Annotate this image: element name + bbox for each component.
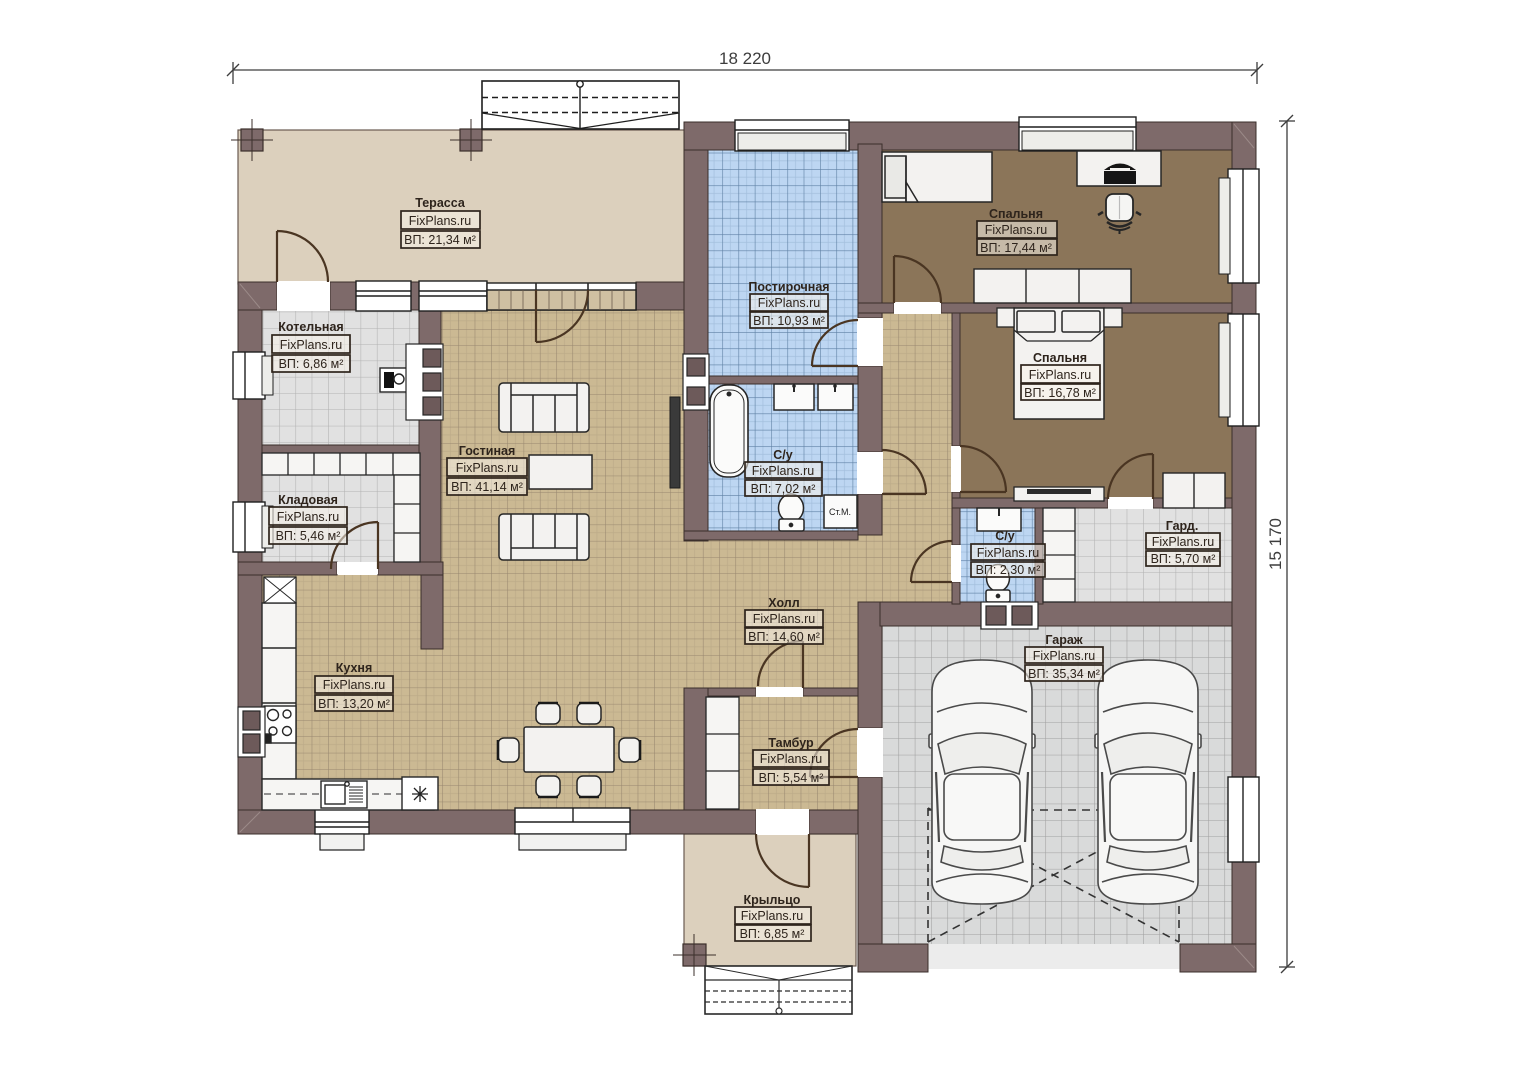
svg-text:С/у: С/у xyxy=(995,529,1015,543)
svg-text:FixPlans.ru: FixPlans.ru xyxy=(280,338,343,352)
svg-text:FixPlans.ru: FixPlans.ru xyxy=(985,223,1048,237)
svg-text:Гард.: Гард. xyxy=(1166,519,1199,533)
svg-text:Холл: Холл xyxy=(768,596,799,610)
svg-text:Котельная: Котельная xyxy=(278,320,343,334)
svg-text:FixPlans.ru: FixPlans.ru xyxy=(977,546,1040,560)
svg-text:ВП: 41,14 м²: ВП: 41,14 м² xyxy=(451,480,523,494)
svg-text:FixPlans.ru: FixPlans.ru xyxy=(753,612,816,626)
svg-text:ВП: 35,34 м²: ВП: 35,34 м² xyxy=(1028,667,1100,681)
svg-text:FixPlans.ru: FixPlans.ru xyxy=(277,510,340,524)
svg-text:FixPlans.ru: FixPlans.ru xyxy=(1029,368,1092,382)
svg-text:ВП: 21,34 м²: ВП: 21,34 м² xyxy=(404,233,476,247)
svg-text:ВП: 14,60 м²: ВП: 14,60 м² xyxy=(748,630,820,644)
svg-text:Кладовая: Кладовая xyxy=(278,493,338,507)
svg-text:ВП: 6,85 м²: ВП: 6,85 м² xyxy=(740,927,805,941)
svg-text:FixPlans.ru: FixPlans.ru xyxy=(323,678,386,692)
svg-text:С/у: С/у xyxy=(773,448,793,462)
svg-text:ВП: 5,54 м²: ВП: 5,54 м² xyxy=(759,771,824,785)
svg-text:Спальня: Спальня xyxy=(989,207,1043,221)
svg-text:Гараж: Гараж xyxy=(1045,633,1082,647)
svg-text:ВП: 5,70 м²: ВП: 5,70 м² xyxy=(1151,552,1216,566)
svg-text:FixPlans.ru: FixPlans.ru xyxy=(1152,535,1215,549)
svg-text:FixPlans.ru: FixPlans.ru xyxy=(758,296,821,310)
svg-text:Терасса: Терасса xyxy=(415,196,466,210)
svg-text:FixPlans.ru: FixPlans.ru xyxy=(456,461,519,475)
svg-text:Спальня: Спальня xyxy=(1033,351,1087,365)
svg-text:Гостиная: Гостиная xyxy=(459,444,516,458)
svg-text:FixPlans.ru: FixPlans.ru xyxy=(741,909,804,923)
svg-text:FixPlans.ru: FixPlans.ru xyxy=(752,464,815,478)
svg-text:ВП: 17,44 м²: ВП: 17,44 м² xyxy=(980,241,1052,255)
svg-text:ВП: 16,78 м²: ВП: 16,78 м² xyxy=(1024,386,1096,400)
svg-text:ВП: 13,20 м²: ВП: 13,20 м² xyxy=(318,697,390,711)
svg-text:FixPlans.ru: FixPlans.ru xyxy=(1033,649,1096,663)
svg-text:ВП: 5,46 м²: ВП: 5,46 м² xyxy=(276,529,341,543)
svg-text:ВП: 10,93 м²: ВП: 10,93 м² xyxy=(753,314,825,328)
svg-text:ВП: 7,02 м²: ВП: 7,02 м² xyxy=(751,482,816,496)
svg-text:Ст.М.: Ст.М. xyxy=(829,507,851,517)
svg-text:Кухня: Кухня xyxy=(336,661,373,675)
svg-text:Тамбур: Тамбур xyxy=(768,736,814,750)
svg-text:Крыльцо: Крыльцо xyxy=(744,893,801,907)
svg-text:ВП: 6,86 м²: ВП: 6,86 м² xyxy=(279,357,344,371)
svg-text:FixPlans.ru: FixPlans.ru xyxy=(409,214,472,228)
svg-text:FixPlans.ru: FixPlans.ru xyxy=(760,752,823,766)
svg-text:18 220: 18 220 xyxy=(719,49,771,68)
svg-text:Постирочная: Постирочная xyxy=(748,280,829,294)
svg-text:15 170: 15 170 xyxy=(1266,518,1285,570)
svg-text:ВП: 2,30 м²: ВП: 2,30 м² xyxy=(976,563,1041,577)
